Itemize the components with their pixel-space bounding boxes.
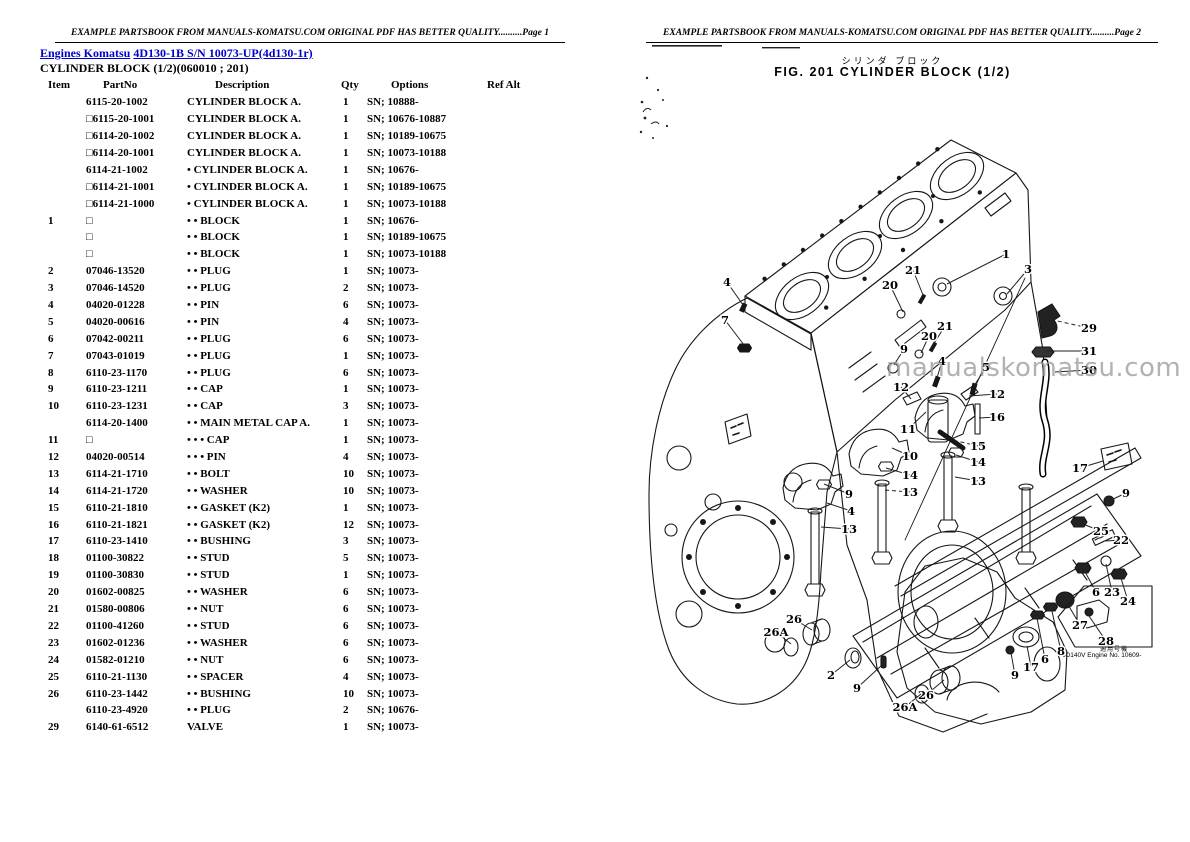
cell-desc: • • GASKET (K2) [187,516,341,533]
cell-options: SN; 10073- [367,482,487,499]
callout-number: 29 [1081,321,1097,335]
cell-ref [487,499,557,516]
cell-options: SN; 10073- [367,685,487,702]
table-row: 2201100-41260• • STUD6SN; 10073- [40,618,557,635]
cell-partno: 6115-20-1002 [86,94,187,111]
cell-ref [487,618,557,635]
cell-ref [487,449,557,466]
callout-number: 13 [970,474,986,488]
callout-number: 6 [1092,585,1100,599]
cell-item: 17 [40,533,86,550]
cell-qty: 1 [341,195,367,212]
cell-qty: 1 [341,432,367,449]
cell-item: 1 [40,212,86,229]
col-header-partno: PartNo [86,77,187,94]
col-header-description: Description [187,77,341,94]
cell-item: 8 [40,364,86,381]
cell-desc: CYLINDER BLOCK A. [187,94,341,111]
cell-options: SN; 10189-10675 [367,178,487,195]
cell-ref [487,347,557,364]
cell-desc: • • BLOCK [187,229,341,246]
cell-item: 19 [40,567,86,584]
cell-desc: • CYLINDER BLOCK A. [187,178,341,195]
cell-item: 25 [40,668,86,685]
cell-partno: □ [86,229,187,246]
cell-ref [487,195,557,212]
cell-ref [487,668,557,685]
callout-number: 14 [970,455,986,469]
table-row: 96110-23-1211• • CAP1SN; 10073- [40,381,557,398]
cell-qty: 2 [341,702,367,719]
cell-desc: • • MAIN METAL CAP A. [187,415,341,432]
cell-ref [487,516,557,533]
cell-ref [487,297,557,314]
cell-options: SN; 10676- [367,212,487,229]
cell-qty: 6 [341,601,367,618]
callout-number: 9 [845,487,853,501]
callout-number: 8 [1057,644,1065,658]
callout-number: 25 [1093,524,1109,538]
cell-qty: 3 [341,533,367,550]
partsbook-spread: { "header": { "banner_text": "EXAMPLE PA… [0,0,1190,842]
cell-partno: 6110-23-1410 [86,533,187,550]
table-row: 256110-21-1130• • SPACER4SN; 10073- [40,668,557,685]
cell-partno: □6114-20-1002 [86,128,187,145]
cell-qty: 6 [341,297,367,314]
cell-desc: • • BUSHING [187,533,341,550]
table-row: 504020-00616• • PIN4SN; 10073- [40,313,557,330]
callout-number: 24 [1120,594,1136,608]
table-row: 136114-21-1710• • BOLT10SN; 10073- [40,465,557,482]
table-row: 266110-23-1442• • BUSHING10SN; 10073- [40,685,557,702]
cell-partno: 6110-23-4920 [86,702,187,719]
table-row: 11□• • • CAP1SN; 10073- [40,432,557,449]
cell-partno: □ [86,432,187,449]
cell-options: SN; 10073- [367,601,487,618]
table-row: 1□• • BLOCK1SN; 10676- [40,212,557,229]
engines-link[interactable]: Engines Komatsu [40,46,130,60]
cell-qty: 12 [341,516,367,533]
cell-partno: 6110-23-1211 [86,381,187,398]
cell-options: SN; 10073- [367,398,487,415]
cell-qty: 5 [341,550,367,567]
cell-qty: 3 [341,398,367,415]
cell-qty: 6 [341,634,367,651]
cell-qty: 4 [341,449,367,466]
cell-qty: 4 [341,313,367,330]
cell-qty: 1 [341,415,367,432]
cell-options: SN; 10073- [367,567,487,584]
cell-partno: 6110-23-1231 [86,398,187,415]
cell-partno: 01582-01210 [86,651,187,668]
table-row: 1801100-30822• • STUD5SN; 10073- [40,550,557,567]
callout-number: 26A [893,700,919,714]
cell-desc: CYLINDER BLOCK A. [187,111,341,128]
col-header-item: Item [40,77,86,94]
cell-partno: 01100-30830 [86,567,187,584]
cell-options: SN; 10676- [367,702,487,719]
cell-desc: • • BUSHING [187,685,341,702]
col-header-options: Options [367,77,487,94]
cell-partno: 01580-00806 [86,601,187,618]
table-row: 6110-23-4920• • PLUG2SN; 10676- [40,702,557,719]
cell-item: 20 [40,584,86,601]
cell-desc: • • PLUG [187,347,341,364]
cell-options: SN; 10073- [367,313,487,330]
cell-options: SN; 10073- [367,651,487,668]
cell-desc: • • SPACER [187,668,341,685]
callout-number: 9 [1122,486,1130,500]
cell-desc: • • WASHER [187,634,341,651]
cell-qty: 1 [341,111,367,128]
parts-table: Item PartNo Description Qty Options Ref … [40,77,557,736]
cell-item: 18 [40,550,86,567]
cell-item [40,111,86,128]
banner-text: EXAMPLE PARTSBOOK FROM MANUALS-KOMATSU.C… [71,28,522,38]
diagram-svg: 1329313021202120954121216111514131014139… [595,0,1190,842]
table-row: 86110-23-1170• • PLUG6SN; 10073- [40,364,557,381]
cell-ref [487,94,557,111]
cell-ref [487,533,557,550]
table-row: □6115-20-1001CYLINDER BLOCK A.1SN; 10676… [40,111,557,128]
parts-table-header: Item PartNo Description Qty Options Ref … [40,77,557,94]
cell-qty: 1 [341,229,367,246]
callout-number: 11 [900,422,916,436]
cell-qty: 1 [341,246,367,263]
callout-number: 17 [1072,461,1088,475]
table-row: 607042-00211• • PLUG6SN; 10073- [40,330,557,347]
callout-number: 9 [1011,668,1019,682]
cell-ref [487,415,557,432]
cell-options: SN; 10189-10675 [367,128,487,145]
callout-number: 23 [1104,585,1120,599]
callout-number: 7 [721,313,729,327]
cell-qty: 10 [341,482,367,499]
cell-options: SN; 10073-10188 [367,246,487,263]
callout-number: 4 [723,275,731,289]
cell-item [40,702,86,719]
cell-partno: 07043-01019 [86,347,187,364]
cell-partno: □ [86,246,187,263]
table-row: 2101580-00806• • NUT6SN; 10073- [40,601,557,618]
cell-partno: 01100-41260 [86,618,187,635]
cell-item: 9 [40,381,86,398]
cell-desc: • • CAP [187,381,341,398]
cell-ref [487,719,557,736]
scan-artifacts [640,45,800,139]
cell-partno: □6114-21-1000 [86,195,187,212]
callout-number: 26A [764,625,790,639]
cell-desc: • CYLINDER BLOCK A. [187,161,341,178]
cell-options: SN; 10073- [367,415,487,432]
cell-item: 4 [40,297,86,314]
cell-options: SN; 10073- [367,499,487,516]
table-row: 307046-14520• • PLUG2SN; 10073- [40,280,557,297]
table-row: 707043-01019• • PLUG1SN; 10073- [40,347,557,364]
page-number: Page 1 [522,28,549,38]
cell-qty: 1 [341,499,367,516]
page-header-left: EXAMPLE PARTSBOOK FROM MANUALS-KOMATSU.C… [55,28,565,43]
breadcrumb: Engines Komatsu 4D130-1B S/N 10073-UP(4d… [40,46,313,61]
table-row: □6114-21-1000• CYLINDER BLOCK A.1SN; 100… [40,195,557,212]
cell-desc: • • GASKET (K2) [187,499,341,516]
table-row: 1204020-00514• • • PIN4SN; 10073- [40,449,557,466]
cell-desc: • • PIN [187,313,341,330]
cell-ref [487,263,557,280]
cell-qty: 1 [341,263,367,280]
cell-item: 16 [40,516,86,533]
table-row: □6114-20-1002CYLINDER BLOCK A.1SN; 10189… [40,128,557,145]
table-row: 106110-23-1231• • CAP3SN; 10073- [40,398,557,415]
cell-qty: 10 [341,685,367,702]
cell-options: SN; 10073- [367,634,487,651]
cell-ref [487,381,557,398]
cell-ref [487,465,557,482]
table-row: □6114-21-1001• CYLINDER BLOCK A.1SN; 101… [40,178,557,195]
cell-desc: CYLINDER BLOCK A. [187,128,341,145]
cell-options: SN; 10073- [367,584,487,601]
cell-partno: 01602-01236 [86,634,187,651]
cell-partno: 07046-13520 [86,263,187,280]
table-row: 146114-21-1720• • WASHER10SN; 10073- [40,482,557,499]
cell-desc: • • PIN [187,297,341,314]
table-row: 207046-13520• • PLUG1SN; 10073- [40,263,557,280]
cell-options: SN; 10073- [367,432,487,449]
table-row: 6114-20-1400• • MAIN METAL CAP A.1SN; 10… [40,415,557,432]
cell-options: SN; 10189-10675 [367,229,487,246]
cell-qty: 4 [341,668,367,685]
cell-ref [487,702,557,719]
cell-qty: 1 [341,178,367,195]
cell-options: SN; 10073- [367,330,487,347]
cell-partno: 04020-00616 [86,313,187,330]
section-title: CYLINDER BLOCK (1/2)(060010 ; 201) [40,61,249,76]
cell-options: SN; 10073- [367,533,487,550]
cell-desc: • • WASHER [187,482,341,499]
cell-item [40,94,86,111]
callout-leader-line [947,254,1006,284]
table-row: 6115-20-1002CYLINDER BLOCK A.1SN; 10888- [40,94,557,111]
cell-item [40,415,86,432]
cell-ref [487,145,557,162]
cell-item [40,161,86,178]
callout-number: 22 [1113,533,1129,547]
cell-partno: 6110-23-1170 [86,364,187,381]
cell-qty: 1 [341,381,367,398]
cell-qty: 1 [341,212,367,229]
cell-options: SN; 10676-10887 [367,111,487,128]
cell-desc: • • PLUG [187,263,341,280]
cell-item: 11 [40,432,86,449]
cell-qty: 2 [341,280,367,297]
watermark-text: manualskomatsu.com [886,353,1181,383]
cell-item: 22 [40,618,86,635]
cell-desc: • • PLUG [187,280,341,297]
cell-options: SN; 10073- [367,449,487,466]
cell-ref [487,229,557,246]
cell-ref [487,161,557,178]
cell-options: SN; 10073- [367,347,487,364]
cell-desc: • CYLINDER BLOCK A. [187,195,341,212]
cell-options: SN; 10073-10188 [367,145,487,162]
cell-options: SN; 10073- [367,297,487,314]
cell-ref [487,313,557,330]
callout-number: 12 [989,387,1005,401]
cell-ref [487,212,557,229]
cell-options: SN; 10073- [367,550,487,567]
cell-item [40,145,86,162]
cell-partno: 6114-21-1720 [86,482,187,499]
cell-options: SN; 10073- [367,280,487,297]
cell-item: 6 [40,330,86,347]
callout-number: 17 [1023,660,1039,674]
cell-item: 12 [40,449,86,466]
cell-partno: 07046-14520 [86,280,187,297]
table-row: 2001602-00825• • WASHER6SN; 10073- [40,584,557,601]
cell-qty: 1 [341,145,367,162]
cell-item: 13 [40,465,86,482]
cell-options: SN; 10073-10188 [367,195,487,212]
cell-ref [487,567,557,584]
cell-desc: • • BOLT [187,465,341,482]
cell-item: 26 [40,685,86,702]
callout-number: 10 [902,449,918,463]
table-row: 6114-21-1002• CYLINDER BLOCK A.1SN; 1067… [40,161,557,178]
cell-desc: • • STUD [187,567,341,584]
cell-ref [487,634,557,651]
parts-table-body: 6115-20-1002CYLINDER BLOCK A.1SN; 10888-… [40,94,557,736]
callout-number: 16 [989,410,1005,424]
cell-ref [487,651,557,668]
cell-item: 3 [40,280,86,297]
callout-number: 21 [937,319,953,333]
cell-ref [487,601,557,618]
cell-item: 21 [40,601,86,618]
cylinder-block-drawing [649,140,1152,732]
callout-number: 14 [902,468,918,482]
cell-desc: • • NUT [187,601,341,618]
callout-number: 9 [853,681,861,695]
callout-number: 2 [827,668,835,682]
cell-partno: □6114-21-1001 [86,178,187,195]
cell-partno: 04020-01228 [86,297,187,314]
cell-partno: 07042-00211 [86,330,187,347]
cell-partno: 6140-61-6512 [86,719,187,736]
cell-partno: 6114-21-1710 [86,465,187,482]
cell-item [40,195,86,212]
cell-qty: 1 [341,128,367,145]
cell-qty: 6 [341,330,367,347]
cell-item: 24 [40,651,86,668]
cell-options: SN; 10676- [367,161,487,178]
cell-options: SN; 10073- [367,719,487,736]
cell-item: 10 [40,398,86,415]
cell-options: SN; 10073- [367,263,487,280]
cell-options: SN; 10073- [367,516,487,533]
callout-number: 6 [1041,652,1049,666]
callout-number: 3 [1024,262,1032,276]
cell-desc: • • • CAP [187,432,341,449]
cell-partno: □6114-20-1001 [86,145,187,162]
table-row: 1901100-30830• • STUD1SN; 10073- [40,567,557,584]
cell-item: 23 [40,634,86,651]
callout-number: 20 [921,329,937,343]
cell-partno: 6110-23-1442 [86,685,187,702]
cell-desc: • • WASHER [187,584,341,601]
cell-ref [487,178,557,195]
table-row: 296140-61-6512VALVE1SN; 10073- [40,719,557,736]
cell-options: SN; 10073- [367,618,487,635]
cell-partno: 01100-30822 [86,550,187,567]
cell-item: 2 [40,263,86,280]
cell-ref [487,128,557,145]
table-row: 2301602-01236• • WASHER6SN; 10073- [40,634,557,651]
cell-options: SN; 10888- [367,94,487,111]
cell-options: SN; 10073- [367,364,487,381]
cell-partno: 6114-20-1400 [86,415,187,432]
callout-number: 28 [1098,634,1114,648]
table-row: 404020-01228• • PIN6SN; 10073- [40,297,557,314]
cell-ref [487,432,557,449]
cell-qty: 10 [341,465,367,482]
cell-qty: 6 [341,618,367,635]
table-row: 176110-23-1410• • BUSHING3SN; 10073- [40,533,557,550]
cell-partno: 6110-21-1130 [86,668,187,685]
cell-ref [487,482,557,499]
callout-number: 20 [882,278,898,292]
table-row: □• • BLOCK1SN; 10073-10188 [40,246,557,263]
cell-item: 15 [40,499,86,516]
cell-options: SN; 10073- [367,381,487,398]
cell-ref [487,246,557,263]
callout-number: 13 [902,485,918,499]
cell-ref [487,330,557,347]
cell-item [40,178,86,195]
cell-qty: 6 [341,651,367,668]
cell-desc: • • PLUG [187,702,341,719]
cell-desc: • • CAP [187,398,341,415]
cell-ref [487,550,557,567]
cell-qty: 1 [341,347,367,364]
cell-ref [487,685,557,702]
table-row: 166110-21-1821• • GASKET (K2)12SN; 10073… [40,516,557,533]
model-link[interactable]: 4D130-1B S/N 10073-UP(4d130-1r) [133,46,312,60]
cell-item: 5 [40,313,86,330]
cell-ref [487,584,557,601]
cell-qty: 6 [341,584,367,601]
cell-desc: • • BLOCK [187,246,341,263]
cell-partno: 6110-21-1821 [86,516,187,533]
cell-desc: • • BLOCK [187,212,341,229]
cell-desc: • • • PIN [187,449,341,466]
cell-desc: CYLINDER BLOCK A. [187,145,341,162]
callout-number: 1 [1002,247,1010,261]
cell-partno: 6110-21-1810 [86,499,187,516]
cell-item [40,246,86,263]
cell-options: SN; 10073- [367,668,487,685]
cell-partno: □ [86,212,187,229]
cell-desc: • • NUT [187,651,341,668]
table-row: □• • BLOCK1SN; 10189-10675 [40,229,557,246]
cell-desc: • • STUD [187,618,341,635]
cell-item: 29 [40,719,86,736]
callout-number: 4 [847,504,855,518]
table-row: □6114-20-1001CYLINDER BLOCK A.1SN; 10073… [40,145,557,162]
cell-desc: VALVE [187,719,341,736]
callout-number: 27 [1072,618,1088,632]
col-header-refalt: Ref Alt [487,77,557,94]
col-header-qty: Qty [341,77,367,94]
